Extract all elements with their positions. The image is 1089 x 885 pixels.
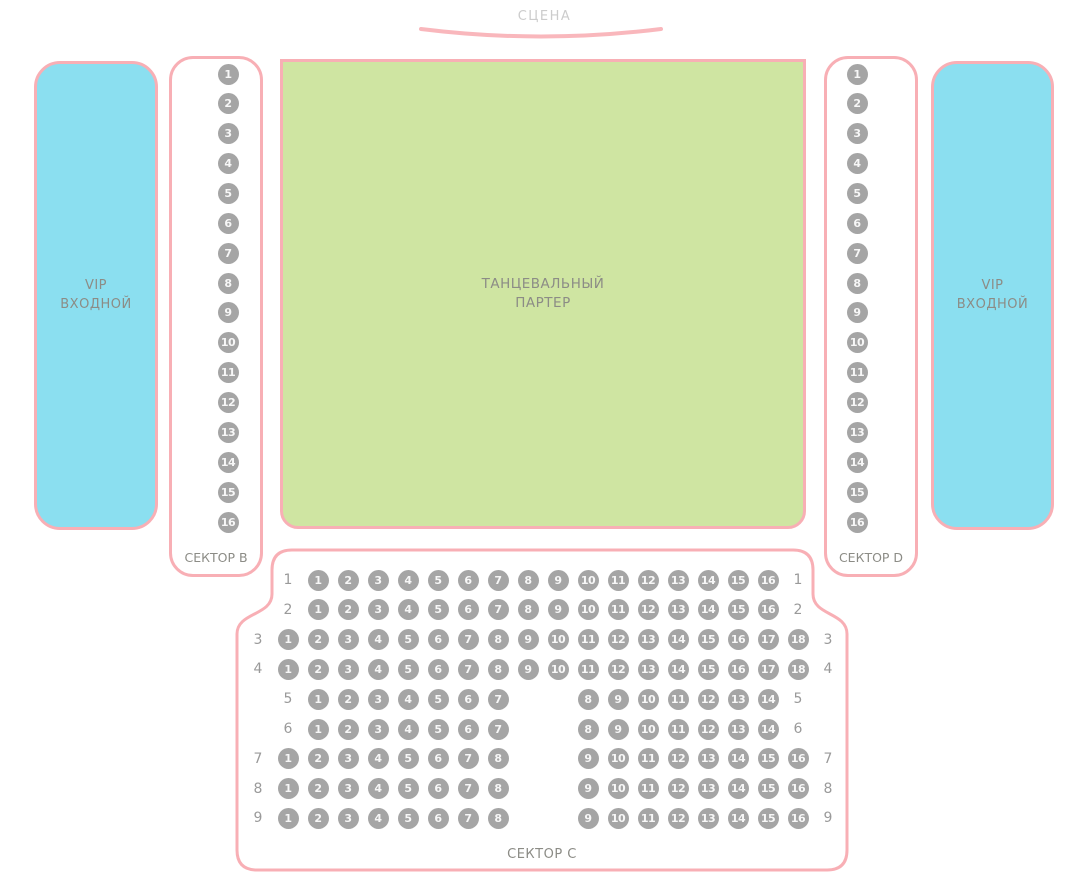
seat[interactable]: 16: [788, 808, 809, 829]
seat[interactable]: 12: [668, 748, 689, 769]
dance-floor-zone[interactable]: ТАНЦЕВАЛЬНЫЙ ПАРТЕР: [280, 59, 806, 529]
seat[interactable]: 11: [578, 629, 599, 650]
seat[interactable]: 14: [698, 570, 719, 591]
seat[interactable]: 9: [548, 570, 569, 591]
seat[interactable]: 6: [458, 570, 479, 591]
row-number-label: 4: [254, 661, 263, 677]
seat[interactable]: 11: [638, 808, 659, 829]
row-number-label: 1: [794, 572, 803, 588]
seat[interactable]: 2: [218, 93, 239, 114]
seat[interactable]: 1: [218, 64, 239, 85]
seat[interactable]: 7: [488, 719, 509, 740]
seat[interactable]: 2: [338, 719, 359, 740]
seat[interactable]: 7: [488, 689, 509, 710]
seat[interactable]: 16: [728, 629, 749, 650]
seat[interactable]: 16: [847, 512, 868, 533]
seat[interactable]: 2: [308, 659, 329, 680]
seat[interactable]: 10: [578, 599, 599, 620]
row-number-label: 5: [794, 691, 803, 707]
seat[interactable]: 14: [728, 808, 749, 829]
seat[interactable]: 8: [578, 689, 599, 710]
row-number-label: 9: [824, 810, 833, 826]
seating-map: СЦЕНА VIP ВХОДНОЙ VIP ВХОДНОЙ СЕКТОР B С…: [0, 0, 1089, 885]
seat[interactable]: 5: [398, 629, 419, 650]
seat[interactable]: 14: [218, 452, 239, 473]
seat[interactable]: 11: [608, 599, 629, 620]
seat[interactable]: 3: [218, 123, 239, 144]
seat[interactable]: 3: [368, 599, 389, 620]
stage-arc: [421, 29, 661, 37]
seat[interactable]: 8: [488, 748, 509, 769]
seat[interactable]: 10: [608, 778, 629, 799]
seat[interactable]: 4: [398, 719, 419, 740]
seat[interactable]: 3: [368, 570, 389, 591]
sector-c-label: СЕКТОР C: [237, 847, 847, 862]
seat[interactable]: 1: [308, 570, 329, 591]
seat[interactable]: 1: [278, 808, 299, 829]
row-number-label: 8: [824, 781, 833, 797]
sector-c-outline: [237, 550, 847, 870]
seat[interactable]: 14: [847, 452, 868, 473]
seat[interactable]: 13: [638, 629, 659, 650]
seat[interactable]: 11: [218, 362, 239, 383]
row-number-label: 3: [824, 632, 833, 648]
seat[interactable]: 12: [847, 392, 868, 413]
seat[interactable]: 9: [578, 748, 599, 769]
seat[interactable]: 8: [847, 273, 868, 294]
seat[interactable]: 16: [728, 659, 749, 680]
sector-b-container: СЕКТОР B: [169, 56, 263, 577]
row-number-label: 1: [284, 572, 293, 588]
seat[interactable]: 8: [488, 629, 509, 650]
seat[interactable]: 5: [428, 719, 449, 740]
seat[interactable]: 12: [668, 778, 689, 799]
seat[interactable]: 6: [458, 689, 479, 710]
seat[interactable]: 14: [758, 719, 779, 740]
seat[interactable]: 5: [398, 659, 419, 680]
seat[interactable]: 3: [847, 123, 868, 144]
seat[interactable]: 9: [608, 689, 629, 710]
sector-d-container: СЕКТОР D: [824, 56, 918, 577]
seat[interactable]: 11: [638, 748, 659, 769]
seat[interactable]: 10: [847, 332, 868, 353]
seat[interactable]: 13: [698, 748, 719, 769]
seat[interactable]: 16: [758, 599, 779, 620]
seat[interactable]: 3: [338, 748, 359, 769]
seat[interactable]: 2: [338, 689, 359, 710]
seat[interactable]: 9: [548, 599, 569, 620]
seat[interactable]: 12: [608, 659, 629, 680]
seat[interactable]: 11: [638, 778, 659, 799]
seat[interactable]: 6: [428, 659, 449, 680]
seat[interactable]: 5: [398, 748, 419, 769]
seat[interactable]: 12: [638, 599, 659, 620]
seat[interactable]: 2: [338, 570, 359, 591]
dance-floor-label: ТАНЦЕВАЛЬНЫЙ ПАРТЕР: [482, 275, 605, 313]
seat[interactable]: 4: [368, 748, 389, 769]
seat[interactable]: 13: [668, 570, 689, 591]
row-number-label: 6: [794, 721, 803, 737]
seat[interactable]: 7: [458, 808, 479, 829]
seat[interactable]: 15: [218, 482, 239, 503]
seat[interactable]: 13: [698, 808, 719, 829]
seat[interactable]: 17: [758, 629, 779, 650]
seat[interactable]: 15: [728, 599, 749, 620]
seat[interactable]: 1: [278, 778, 299, 799]
seat[interactable]: 15: [847, 482, 868, 503]
seat[interactable]: 2: [338, 599, 359, 620]
seat[interactable]: 5: [398, 778, 419, 799]
seat[interactable]: 12: [698, 719, 719, 740]
seat[interactable]: 3: [338, 778, 359, 799]
seat[interactable]: 1: [278, 659, 299, 680]
seat[interactable]: 12: [218, 392, 239, 413]
seat[interactable]: 5: [428, 570, 449, 591]
seat[interactable]: 11: [668, 689, 689, 710]
seat[interactable]: 13: [728, 719, 749, 740]
seat[interactable]: 8: [578, 719, 599, 740]
seat[interactable]: 8: [518, 570, 539, 591]
seat[interactable]: 13: [698, 778, 719, 799]
seat[interactable]: 12: [668, 808, 689, 829]
stage-label: СЦЕНА: [0, 9, 1089, 24]
seat[interactable]: 8: [218, 273, 239, 294]
row-number-label: 4: [824, 661, 833, 677]
row-number-label: 3: [254, 632, 263, 648]
seat[interactable]: 4: [847, 153, 868, 174]
sector-b-label: СЕКТОР B: [172, 550, 260, 565]
seat[interactable]: 10: [638, 719, 659, 740]
seat[interactable]: 2: [847, 93, 868, 114]
seat[interactable]: 16: [758, 570, 779, 591]
seat[interactable]: 8: [488, 778, 509, 799]
seat[interactable]: 1: [278, 629, 299, 650]
seat[interactable]: 10: [608, 748, 629, 769]
seat[interactable]: 8: [488, 659, 509, 680]
seat[interactable]: 7: [458, 629, 479, 650]
seat[interactable]: 2: [308, 748, 329, 769]
seat[interactable]: 13: [218, 422, 239, 443]
seat[interactable]: 3: [338, 659, 359, 680]
seat[interactable]: 14: [728, 748, 749, 769]
seat[interactable]: 9: [578, 808, 599, 829]
seat[interactable]: 18: [788, 629, 809, 650]
row-number-label: 9: [254, 810, 263, 826]
seat[interactable]: 4: [368, 778, 389, 799]
seat[interactable]: 12: [698, 689, 719, 710]
seat[interactable]: 4: [398, 599, 419, 620]
vip-right-label: VIP ВХОДНОЙ: [957, 277, 1028, 315]
seat[interactable]: 14: [698, 599, 719, 620]
seat[interactable]: 10: [548, 659, 569, 680]
seat[interactable]: 13: [847, 422, 868, 443]
seat[interactable]: 7: [488, 570, 509, 591]
seat[interactable]: 6: [458, 719, 479, 740]
seat[interactable]: 6: [218, 213, 239, 234]
seat[interactable]: 7: [847, 243, 868, 264]
seat[interactable]: 2: [308, 629, 329, 650]
seat[interactable]: 4: [398, 570, 419, 591]
seat[interactable]: 10: [548, 629, 569, 650]
vip-left-label: VIP ВХОДНОЙ: [60, 277, 131, 315]
row-number-label: 2: [794, 602, 803, 618]
seat[interactable]: 14: [728, 778, 749, 799]
seat[interactable]: 4: [368, 629, 389, 650]
seat[interactable]: 14: [668, 659, 689, 680]
seat[interactable]: 8: [518, 599, 539, 620]
vip-right-zone[interactable]: VIP ВХОДНОЙ: [931, 61, 1054, 530]
seat[interactable]: 10: [578, 570, 599, 591]
seat[interactable]: 13: [668, 599, 689, 620]
seat[interactable]: 3: [338, 808, 359, 829]
seat[interactable]: 7: [458, 659, 479, 680]
seat[interactable]: 1: [278, 748, 299, 769]
seat[interactable]: 3: [368, 719, 389, 740]
row-number-label: 8: [254, 781, 263, 797]
seat[interactable]: 1: [308, 719, 329, 740]
seat[interactable]: 6: [428, 748, 449, 769]
seat[interactable]: 7: [488, 599, 509, 620]
seat[interactable]: 10: [608, 808, 629, 829]
seat[interactable]: 15: [728, 570, 749, 591]
seat[interactable]: 2: [308, 778, 329, 799]
seat[interactable]: 1: [847, 64, 868, 85]
seat[interactable]: 15: [698, 659, 719, 680]
seat[interactable]: 5: [428, 689, 449, 710]
seat[interactable]: 11: [668, 719, 689, 740]
seat[interactable]: 11: [608, 570, 629, 591]
seat[interactable]: 7: [218, 243, 239, 264]
seat[interactable]: 15: [758, 778, 779, 799]
seat[interactable]: 13: [638, 659, 659, 680]
seat[interactable]: 15: [698, 629, 719, 650]
row-number-label: 2: [284, 602, 293, 618]
seat[interactable]: 8: [488, 808, 509, 829]
seat[interactable]: 9: [218, 302, 239, 323]
seat[interactable]: 6: [428, 808, 449, 829]
row-number-label: 7: [254, 751, 263, 767]
seat[interactable]: 17: [758, 659, 779, 680]
seat[interactable]: 15: [758, 808, 779, 829]
seat[interactable]: 5: [847, 183, 868, 204]
seat[interactable]: 16: [788, 748, 809, 769]
seat[interactable]: 6: [428, 629, 449, 650]
seat[interactable]: 6: [458, 599, 479, 620]
seat[interactable]: 12: [638, 570, 659, 591]
seat[interactable]: 1: [308, 599, 329, 620]
seat[interactable]: 4: [368, 659, 389, 680]
seat[interactable]: 4: [368, 808, 389, 829]
seat[interactable]: 6: [847, 213, 868, 234]
seat[interactable]: 14: [668, 629, 689, 650]
seat[interactable]: 18: [788, 659, 809, 680]
seat[interactable]: 4: [398, 689, 419, 710]
seat[interactable]: 12: [608, 629, 629, 650]
seat[interactable]: 9: [847, 302, 868, 323]
seat[interactable]: 16: [788, 778, 809, 799]
row-number-label: 6: [284, 721, 293, 737]
seat[interactable]: 1: [308, 689, 329, 710]
vip-left-zone[interactable]: VIP ВХОДНОЙ: [34, 61, 158, 530]
row-number-label: 7: [824, 751, 833, 767]
seat[interactable]: 3: [338, 629, 359, 650]
seat[interactable]: 9: [518, 659, 539, 680]
sector-d-label: СЕКТОР D: [827, 550, 915, 565]
seat[interactable]: 9: [608, 719, 629, 740]
seat[interactable]: 2: [308, 808, 329, 829]
seat[interactable]: 16: [218, 512, 239, 533]
seat[interactable]: 11: [578, 659, 599, 680]
seat[interactable]: 7: [458, 748, 479, 769]
seat[interactable]: 15: [758, 748, 779, 769]
seat[interactable]: 11: [847, 362, 868, 383]
seat[interactable]: 10: [638, 689, 659, 710]
seat[interactable]: 14: [758, 689, 779, 710]
seat[interactable]: 4: [218, 153, 239, 174]
seat[interactable]: 10: [218, 332, 239, 353]
seat[interactable]: 13: [728, 689, 749, 710]
seat[interactable]: 5: [218, 183, 239, 204]
seat[interactable]: 5: [398, 808, 419, 829]
seat[interactable]: 5: [428, 599, 449, 620]
seat[interactable]: 9: [518, 629, 539, 650]
seat[interactable]: 7: [458, 778, 479, 799]
row-number-label: 5: [284, 691, 293, 707]
seat[interactable]: 6: [428, 778, 449, 799]
seat[interactable]: 9: [578, 778, 599, 799]
seat[interactable]: 3: [368, 689, 389, 710]
